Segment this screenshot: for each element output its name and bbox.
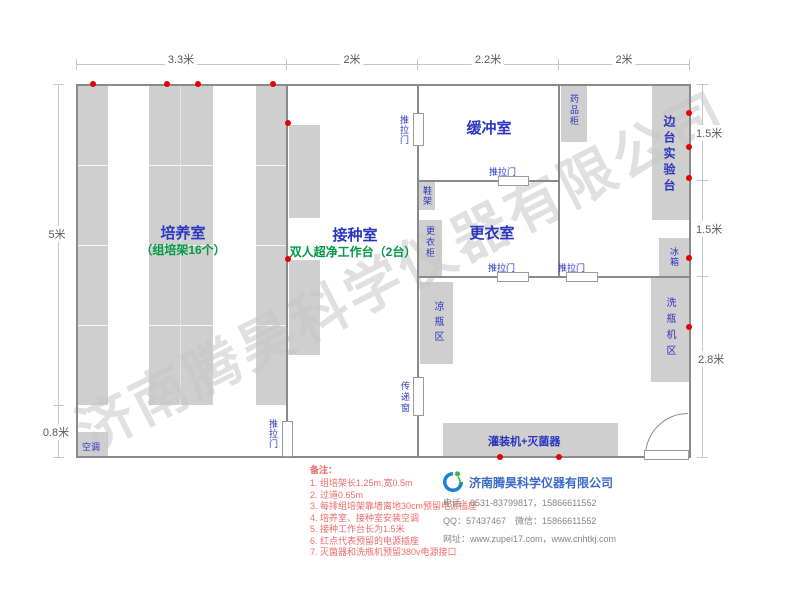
sliding-door-culture xyxy=(282,421,293,457)
floor-plan-page: 济南腾昊科学仪器有限公司 3.3米 2米 2.2米 2米 5米 0.8米 1.5… xyxy=(0,0,800,600)
company-name: 济南腾昊科学仪器有限公司 xyxy=(469,474,613,491)
dim-left-1: 5米 xyxy=(45,226,68,242)
power-outlet-dot xyxy=(497,454,503,460)
side-bench-lab-label: 边台实验台 xyxy=(663,115,675,195)
wall-inoculation-right-1 xyxy=(417,84,419,113)
filling-sterilizer-label: 灌装机+灭菌器 xyxy=(488,433,560,449)
power-outlet-dot xyxy=(285,256,291,262)
pass-window-label: 传递窗 xyxy=(400,381,409,414)
dim-top-2: 2米 xyxy=(340,51,363,67)
medicine-cabinet-label: 药品柜 xyxy=(569,94,578,127)
culture-rack-column-1 xyxy=(77,86,108,405)
power-outlet-dot xyxy=(686,255,692,261)
sliding-door-label-1: 推拉门 xyxy=(399,115,408,145)
power-outlet-dot xyxy=(270,81,276,87)
sliding-door-label-5: 推拉门 xyxy=(558,261,585,274)
inoculation-room-label: 接种室 xyxy=(332,224,377,245)
top-dim-tick xyxy=(76,59,77,70)
left-dim-tick xyxy=(53,457,64,458)
dim-top-1: 3.3米 xyxy=(165,51,197,67)
sliding-door-label-3: 推拉门 xyxy=(489,165,516,178)
ac-label: 空调 xyxy=(82,440,100,453)
fridge-label: 冰箱 xyxy=(669,247,678,267)
company-qq-wechat: QQ：57437467 微信：15866611552 xyxy=(443,514,596,527)
left-dim-tick xyxy=(53,405,64,406)
company-website: 网址：www.zupei17.com，www.cnhtkj.com xyxy=(443,532,616,545)
company-phone: 电话：0531-83799817，15866611552 xyxy=(443,496,596,509)
dim-left-2: 0.8米 xyxy=(40,424,72,440)
wall-inoculation-right-3 xyxy=(417,414,419,458)
changing-room-label: 更衣室 xyxy=(469,222,514,243)
dim-right-1: 1.5米 xyxy=(695,125,723,141)
culture-room-sublabel: （组培架16个） xyxy=(140,241,225,258)
power-outlet-dot xyxy=(195,81,201,87)
wall-buffer-changing-1 xyxy=(418,180,498,182)
dim-right-2: 1.5米 xyxy=(695,221,723,237)
dim-top-3: 2.2米 xyxy=(472,51,504,67)
top-dim-tick xyxy=(689,59,690,70)
shoe-rack-label: 鞋架 xyxy=(422,186,431,206)
pass-window xyxy=(413,377,424,416)
inoculation-room-sublabel: 双人超净工作台（2台） xyxy=(290,243,417,260)
company-logo-icon xyxy=(441,470,465,499)
right-dim-tick xyxy=(697,457,708,458)
bottle-cooling-label: 凉瓶区 xyxy=(432,301,442,346)
power-outlet-dot xyxy=(90,81,96,87)
clean-bench-1 xyxy=(289,125,320,218)
wall-inoculation-right-2 xyxy=(417,144,419,377)
right-dim-tick xyxy=(697,180,708,181)
dim-right-3: 2.8米 xyxy=(697,351,725,367)
sliding-door-label-4: 推拉门 xyxy=(488,261,515,274)
power-outlet-dot xyxy=(285,120,291,126)
sliding-door-label-2: 推拉门 xyxy=(268,419,277,449)
note-item: 7. 灭菌器和洗瓶机预留380v电源接口 xyxy=(310,548,477,557)
right-dim-tick xyxy=(697,84,708,85)
culture-room-label: 培养室 xyxy=(160,222,205,243)
power-outlet-dot xyxy=(686,324,692,330)
top-dim-tick xyxy=(286,59,287,70)
top-dim-tick xyxy=(558,59,559,70)
clean-bench-2 xyxy=(289,260,320,355)
power-outlet-dot xyxy=(686,144,692,150)
power-outlet-dot xyxy=(686,110,692,116)
power-outlet-dot xyxy=(164,81,170,87)
power-outlet-dot xyxy=(686,175,692,181)
dim-top-4: 2米 xyxy=(612,51,635,67)
right-dim-tick xyxy=(697,276,708,277)
wall-right xyxy=(689,84,691,458)
power-outlet-dot xyxy=(556,454,562,460)
wall-culture-inoculation xyxy=(286,84,288,421)
top-dim-tick xyxy=(417,59,418,70)
left-dim-line xyxy=(58,85,59,458)
wall-workroom-top-3 xyxy=(597,276,690,278)
wardrobe-label: 更衣柜 xyxy=(425,226,434,259)
wall-left xyxy=(76,84,78,458)
bottle-washer-label: 洗瓶机区 xyxy=(664,297,674,361)
culture-rack-column-3 xyxy=(256,86,287,405)
sliding-door-buffer xyxy=(413,113,424,146)
left-dim-tick xyxy=(53,84,64,85)
wall-workroom-top-2 xyxy=(528,276,566,278)
wall-buffer-changing-2 xyxy=(528,180,559,182)
entrance-door-leaf xyxy=(644,450,689,460)
buffer-room-label: 缓冲室 xyxy=(466,117,511,138)
wall-workroom-top-1 xyxy=(418,276,497,278)
